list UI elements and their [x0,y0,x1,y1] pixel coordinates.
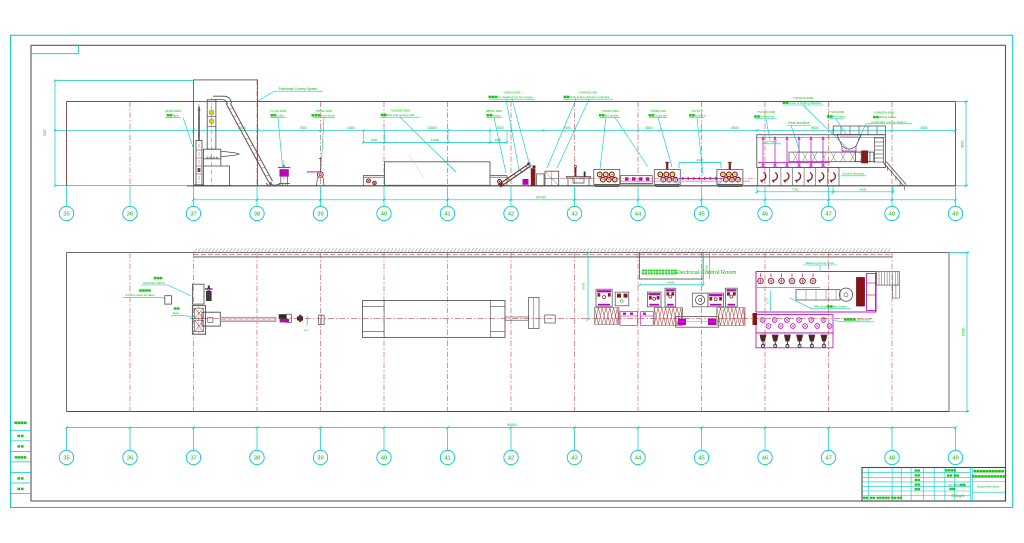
svg-text:7505#-1000: 7505#-1000 [316,109,332,113]
svg-text:4600: 4600 [860,188,867,192]
svg-text:YS71#5-0000: YS71#5-0000 [757,110,776,114]
svg-text:7500: 7500 [496,126,503,130]
svg-text:7000: 7000 [43,129,47,136]
svg-text:Door: Door [173,311,180,315]
svg-text:3500: 3500 [920,126,927,130]
svg-text:Pre-heating box for romper: Pre-heating box for romper [497,95,533,99]
svg-text:40: 40 [381,456,387,462]
svg-text:45: 45 [698,212,704,218]
svg-text:7500: 7500 [299,126,306,130]
svg-text:41: 41 [444,456,450,462]
svg-text:tub Reels: tub Reels [765,140,778,144]
svg-text:pneumatic convey System: pneumatic convey System [871,120,907,124]
svg-text:Hyyphradrivbriyd: Hyyphradrivbriyd [977,484,1000,488]
svg-text:46: 46 [762,212,768,218]
svg-text:38: 38 [254,456,260,462]
svg-text:47: 47 [825,212,831,218]
svg-text:44: 44 [635,212,642,218]
svg-text:14000: 14000 [431,138,440,142]
svg-text:35: 35 [63,456,69,462]
svg-text:Dtcser: Dtcser [492,113,501,117]
svg-text:48: 48 [889,212,895,218]
svg-text:48: 48 [889,456,895,462]
svg-text:500kg/hr: 500kg/hr [951,494,965,498]
svg-text:39: 39 [317,212,323,218]
svg-text:YSM02-400: YSM02-400 [650,109,666,113]
svg-text:YSL8000-0000: YSL8000-0000 [390,108,410,112]
svg-text:Control Housing: Control Housing [842,172,864,176]
svg-text:44: 44 [635,456,642,462]
svg-text:Tank: Tank [172,113,179,117]
svg-text:YSP0432-400: YSP0432-400 [579,90,598,94]
svg-text:42: 42 [508,456,514,462]
svg-text:4400: 4400 [697,158,704,162]
svg-text:15000: 15000 [962,327,966,336]
svg-text:VS604-2000: VS604-2000 [504,90,521,94]
svg-text:YSP4016-2000: YSP4016-2000 [793,96,814,100]
svg-text:49: 49 [952,456,958,462]
svg-text:8400: 8400 [668,281,675,285]
svg-text:39: 39 [317,456,323,462]
svg-text:YSM#1-1500: YSM#1-1500 [601,109,619,113]
svg-text:1770: 1770 [766,298,770,304]
svg-text:24200-0000: 24200-0000 [165,109,181,113]
svg-text:7700: 7700 [792,188,799,192]
svg-text:64700: 64700 [536,195,545,199]
svg-text:YSM6020-4500: YSM6020-4500 [874,111,895,115]
svg-text:Count box: Count box [654,113,668,117]
svg-text:Cap.winder: Cap.winder [856,318,871,322]
svg-text:46: 46 [762,456,768,462]
svg-text:37: 37 [190,212,196,218]
svg-text:47: 47 [825,456,831,462]
svg-text:98051-1000: 98051-1000 [486,109,502,113]
svg-text:6000: 6000 [582,282,586,289]
svg-text:Vac loader: Vac loader [833,305,847,309]
svg-text:84000: 84000 [507,423,516,427]
svg-text:9rd divider: 9rd divider [605,113,619,117]
svg-text:43: 43 [571,456,577,462]
svg-text:38: 38 [254,212,260,218]
svg-text:Mixing beater: Mixing beater [879,115,897,119]
svg-text:8000: 8000 [961,140,965,147]
svg-text:Cutter & Cutting Machine: Cutter & Cutting Machine [788,101,822,105]
svg-text:Hydraulic station: Hydraulic station [143,281,166,285]
svg-text:Coller: Coller [276,113,284,117]
svg-text:econd b: econd b [695,113,706,117]
svg-text:YCJ13-1000: YCJ13-1000 [270,109,287,113]
svg-text:Fiber stockline: Fiber stockline [788,121,809,125]
svg-text:35: 35 [63,212,69,218]
svg-text:43: 43 [571,212,577,218]
svg-text:40: 40 [381,212,387,218]
svg-text:1500: 1500 [495,138,502,142]
svg-text:Electrical Control Room: Electrical Control Room [676,270,737,276]
svg-text:45: 45 [698,456,704,462]
svg-text:PA6 chips: PA6 chips [814,305,828,309]
svg-text:Metering Pump Drive: Metering Pump Drive [806,261,835,265]
svg-text:5000: 5000 [731,126,738,130]
svg-text:YS7#1-#: YS7#1-# [691,109,703,113]
svg-text:8Crimder: 8Crimder [833,115,845,119]
svg-text:42: 42 [508,212,514,218]
svg-text:37: 37 [190,456,196,462]
svg-text:13000: 13000 [428,126,437,130]
svg-text:2000: 2000 [371,138,378,142]
svg-text:41: 41 [444,212,450,218]
svg-text:Dting & low extrusion machine: Dting & low extrusion machine [569,95,610,99]
svg-text:36: 36 [127,456,133,462]
svg-text:Y?125-0000: Y?125-0000 [828,110,845,114]
svg-text:5600: 5600 [645,126,652,130]
svg-text:selur Sieve: selur Sieve [320,113,335,117]
svg-text:Control panel for labor: Control panel for labor [125,293,155,297]
svg-text:49: 49 [952,212,958,218]
svg-text:7ire divider: 7ire divider [760,115,775,119]
svg-text:AC 380kW: AC 380kW [948,483,962,487]
svg-text:Ribs and testing cells: Ribs and testing cells [386,113,415,117]
svg-text:4400: 4400 [347,126,354,130]
svg-text:36: 36 [127,212,133,218]
svg-text:8000: 8000 [811,126,818,130]
svg-text:Pneumatic Convey System: Pneumatic Convey System [279,87,318,91]
